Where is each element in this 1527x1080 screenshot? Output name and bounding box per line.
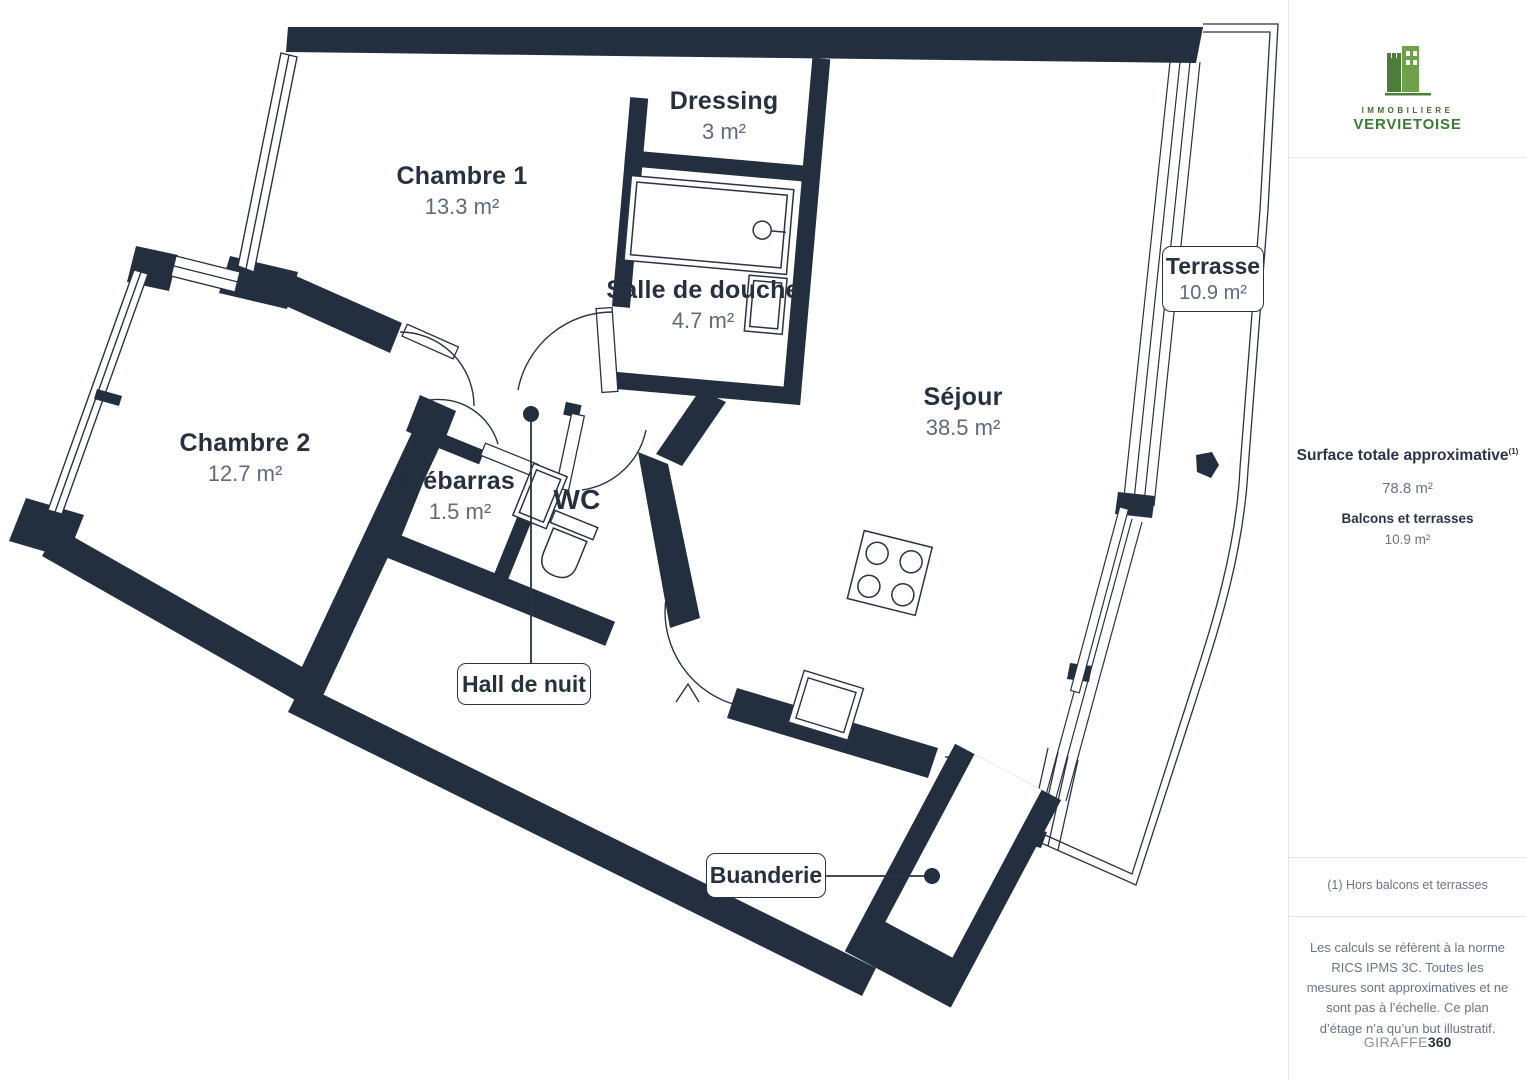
entry-chevron-icon	[676, 684, 699, 702]
brand-logo: GIRAFFE360	[1288, 1034, 1527, 1050]
shower-tray-icon	[624, 176, 794, 275]
label-box-buanderie: Buanderie	[706, 853, 826, 898]
label-leaders	[523, 406, 940, 884]
agency-logo: IMMOBILIERE VERVIETOISE	[1288, 44, 1527, 133]
glazed-wall	[1046, 62, 1200, 801]
footnote: (1) Hors balcons et terrasses	[1288, 878, 1527, 892]
sidebar-divider-footnote-top	[1288, 857, 1527, 858]
storage-room-walls	[378, 421, 659, 645]
disclaimer-text: Les calculs se réfèrent à la norme RICS …	[1288, 938, 1527, 1039]
logo-text-line1: IMMOBILIERE	[1288, 106, 1527, 115]
bedroom-door-leaf	[402, 324, 458, 359]
shower-room-door-leaf	[596, 308, 618, 393]
sliding-door-panel	[1071, 507, 1129, 693]
surface-total-title: Surface totale approximative(1)	[1288, 447, 1527, 465]
floorplan-page: Chambre 1 13.3 m² Dressing 3 m² Salle de…	[0, 0, 1527, 1080]
castle-buildings-icon	[1385, 44, 1431, 96]
terrace-outline	[1028, 24, 1278, 885]
sidebar-divider-top	[1288, 157, 1527, 158]
surface-total-value: 78.8 m²	[1288, 480, 1527, 497]
floorplan-drawing	[0, 0, 1288, 1080]
balconies-title: Balcons et terrasses	[1288, 511, 1527, 526]
label-box-hall-de-nuit: Hall de nuit	[457, 663, 591, 705]
sidebar-divider-footnote-bottom	[1288, 916, 1527, 917]
balconies-value: 10.9 m²	[1288, 532, 1527, 547]
bathroom-sink-icon	[744, 275, 787, 334]
stove-icon	[847, 531, 932, 616]
walls	[9, 27, 1219, 996]
label-box-terrasse: Terrasse 10.9 m²	[1162, 246, 1264, 312]
logo-text-line2: VERVIETOISE	[1288, 116, 1527, 133]
shower-room-wing	[605, 42, 830, 405]
